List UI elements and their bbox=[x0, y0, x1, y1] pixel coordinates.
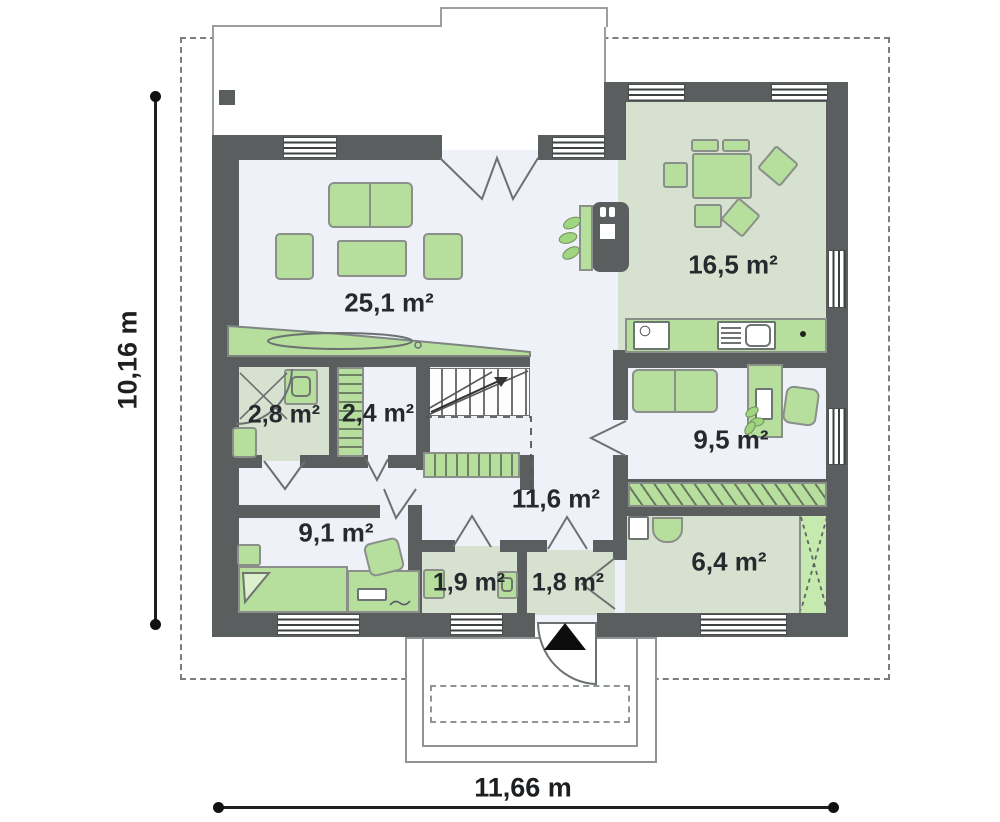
room-label-office: 9,5 m² bbox=[693, 425, 768, 456]
sofa-office-divider bbox=[674, 371, 676, 411]
wall-office-left-upper bbox=[613, 368, 628, 420]
room-label-kitchen: 16,5 m² bbox=[688, 250, 778, 281]
fireplace-vent-2 bbox=[609, 207, 615, 217]
terrace-step-outline bbox=[440, 7, 608, 27]
sofa-living-divider bbox=[369, 184, 371, 226]
wall-vestibule-bath-divider bbox=[613, 507, 627, 560]
wall-left-exterior bbox=[212, 135, 239, 637]
window-office-right bbox=[828, 408, 846, 465]
window-kitchen-top-2 bbox=[771, 84, 828, 101]
window-bedroom-bottom bbox=[277, 614, 360, 635]
nightstand-bedroom bbox=[237, 544, 261, 566]
toilet-small-bath bbox=[232, 427, 257, 458]
dimension-height-dot-bottom bbox=[150, 619, 161, 630]
wall-bedroom-top bbox=[212, 505, 380, 518]
window-living-top-2 bbox=[552, 137, 605, 158]
fireplace-door bbox=[600, 224, 615, 239]
shower-large-floor bbox=[799, 514, 829, 615]
dining-chair-top-1 bbox=[691, 139, 719, 152]
dining-table bbox=[692, 153, 752, 199]
armchair-living-right bbox=[423, 233, 463, 280]
room-label-vestibule: 1,8 m² bbox=[532, 569, 604, 598]
staircase-steps bbox=[428, 368, 530, 416]
chimney bbox=[219, 90, 235, 105]
dimension-height-label: 10,16 m bbox=[113, 310, 144, 409]
wall-kitchen-left-upper bbox=[604, 82, 626, 160]
sink-bath-large bbox=[652, 517, 683, 543]
doormat-dashed-outline bbox=[430, 685, 630, 723]
room-label-hall: 11,6 m² bbox=[512, 484, 600, 515]
dimension-height-dot-top bbox=[150, 91, 161, 102]
bed-bedroom bbox=[238, 566, 348, 613]
desk-bedroom-item bbox=[357, 588, 387, 601]
coffee-table-living bbox=[337, 240, 407, 277]
dimension-width-dot-left bbox=[213, 802, 224, 813]
entrance-marker-triangle bbox=[544, 623, 586, 650]
stove-icon bbox=[633, 321, 670, 350]
corridor-wardrobe bbox=[628, 482, 827, 507]
floor-plan: 25,1 m² 16,5 m² 2,8 m² 2,4 m² 9,5 m² 11,… bbox=[0, 0, 1000, 822]
window-bath-large-bottom bbox=[700, 614, 787, 635]
dimension-width-dot-right bbox=[828, 802, 839, 813]
room-label-living: 25,1 m² bbox=[344, 288, 434, 319]
wall-living-bottom bbox=[212, 353, 530, 367]
wall-wc-vestibule-divider bbox=[517, 543, 527, 613]
counter-tap-dot bbox=[800, 331, 806, 337]
dining-chair-left bbox=[663, 162, 688, 188]
laptop-office bbox=[755, 388, 773, 420]
kitchen-sink-drainer bbox=[721, 327, 741, 344]
hall-bench-radiator bbox=[423, 452, 520, 478]
dimension-width-label: 11,66 m bbox=[474, 773, 572, 804]
room-label-bedroom: 9,1 m² bbox=[298, 518, 373, 549]
wall-office-left-lower bbox=[613, 455, 628, 507]
fireplace-vent-1 bbox=[600, 207, 606, 217]
dimension-line-height bbox=[154, 96, 157, 625]
dining-chair-top-2 bbox=[722, 139, 750, 152]
firewood-shelf bbox=[579, 205, 593, 271]
room-label-bath-small: 2,8 m² bbox=[248, 401, 320, 430]
window-kitchen-right bbox=[828, 250, 846, 308]
room-label-bath-large: 6,4 m² bbox=[691, 547, 766, 578]
room-label-closet: 2,4 m² bbox=[342, 400, 414, 429]
wall-vestibule-top-left bbox=[527, 540, 547, 552]
washbasin-small-bath-bowl bbox=[291, 376, 311, 397]
chair-office bbox=[782, 385, 821, 427]
dimension-line-width bbox=[218, 806, 833, 809]
armchair-living-left bbox=[275, 233, 314, 280]
wall-wc-top-left bbox=[408, 540, 455, 552]
kitchen-sink-basin bbox=[745, 324, 771, 347]
window-living-top-1 bbox=[283, 137, 337, 158]
room-label-wc: 1,9 m² bbox=[433, 569, 505, 598]
wall-bath-large-top bbox=[627, 507, 848, 516]
window-wc-bottom bbox=[450, 614, 503, 635]
washer-bath-large bbox=[628, 516, 649, 540]
window-kitchen-top-1 bbox=[628, 84, 685, 101]
wall-bath-closet-divider bbox=[329, 362, 337, 461]
dining-chair-bottom bbox=[694, 204, 722, 228]
